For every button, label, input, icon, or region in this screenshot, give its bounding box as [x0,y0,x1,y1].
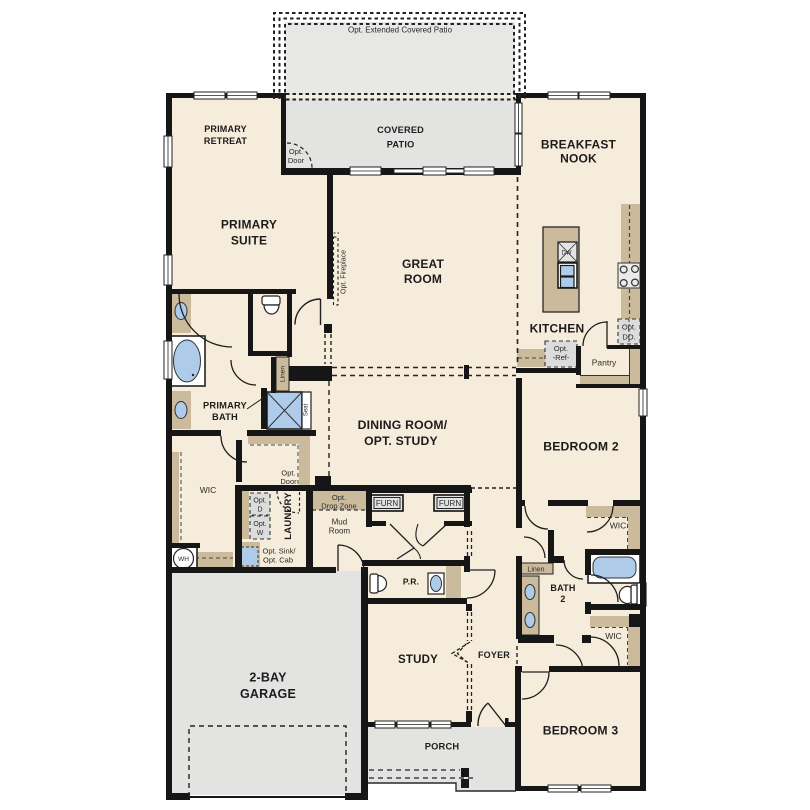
svg-text:Opt. Extended Covered Patio: Opt. Extended Covered Patio [348,25,453,34]
svg-text:ROOM: ROOM [404,272,442,286]
svg-text:Opt.: Opt. [253,498,266,505]
svg-text:WIC: WIC [200,485,217,495]
svg-text:BATH: BATH [212,412,238,422]
svg-text:STUDY: STUDY [398,654,438,666]
svg-text:Seat: Seat [304,403,310,416]
svg-text:SUITE: SUITE [231,233,267,247]
svg-text:LAUNDRY: LAUNDRY [283,492,294,540]
svg-text:BREAKFAST: BREAKFAST [541,138,617,152]
svg-text:DW: DW [562,251,572,257]
svg-text:W: W [257,530,264,537]
svg-text:PORCH: PORCH [425,741,460,751]
svg-text:Opt. Cab: Opt. Cab [263,556,293,565]
svg-text:Linen: Linen [527,567,544,574]
svg-text:FURN: FURN [376,499,398,508]
svg-text:FOYER: FOYER [478,650,510,660]
svg-text:Room: Room [329,526,351,535]
svg-text:2: 2 [560,594,565,604]
svg-text:2-BAY: 2-BAY [249,671,287,685]
svg-text:Drop Zone: Drop Zone [321,502,356,511]
svg-text:Opt.: Opt. [253,521,266,528]
svg-text:GARAGE: GARAGE [240,687,296,701]
svg-text:PRIMARY: PRIMARY [204,124,247,134]
svg-text:WH: WH [178,556,189,563]
svg-text:BATH: BATH [550,583,575,593]
svg-text:PRIMARY: PRIMARY [221,217,277,231]
svg-text:DO.: DO. [622,333,635,342]
svg-text:RETREAT: RETREAT [204,136,248,146]
svg-text:Linen: Linen [280,366,287,382]
svg-text:PATIO: PATIO [387,139,415,149]
svg-text:KITCHEN: KITCHEN [530,321,585,335]
svg-text:BEDROOM 3: BEDROOM 3 [543,723,619,737]
svg-text:-Ref-: -Ref- [553,353,570,362]
svg-text:COVERED: COVERED [377,125,424,135]
svg-text:DINING ROOM/: DINING ROOM/ [358,418,448,432]
svg-text:Opt.: Opt. [622,323,636,332]
svg-text:Opt. Fireplace: Opt. Fireplace [341,250,348,294]
svg-text:P.R.: P.R. [403,577,419,587]
svg-text:WIC: WIC [605,631,622,641]
svg-text:Opt.: Opt. [289,147,303,156]
svg-text:WIC: WIC [610,521,627,531]
svg-text:Opt.: Opt. [554,344,568,353]
svg-text:Door: Door [288,156,305,165]
svg-text:Door: Door [280,477,297,486]
svg-text:Pantry: Pantry [592,358,617,368]
svg-text:FURN: FURN [439,499,461,508]
svg-text:GREAT: GREAT [402,257,445,271]
svg-text:OPT. STUDY: OPT. STUDY [364,434,438,448]
svg-text:D: D [257,507,262,514]
svg-text:Mud: Mud [332,517,348,526]
svg-text:PRIMARY: PRIMARY [203,400,248,410]
svg-text:BEDROOM 2: BEDROOM 2 [543,439,619,453]
svg-text:Opt. Sink/: Opt. Sink/ [263,547,297,556]
svg-text:NOOK: NOOK [560,152,597,166]
